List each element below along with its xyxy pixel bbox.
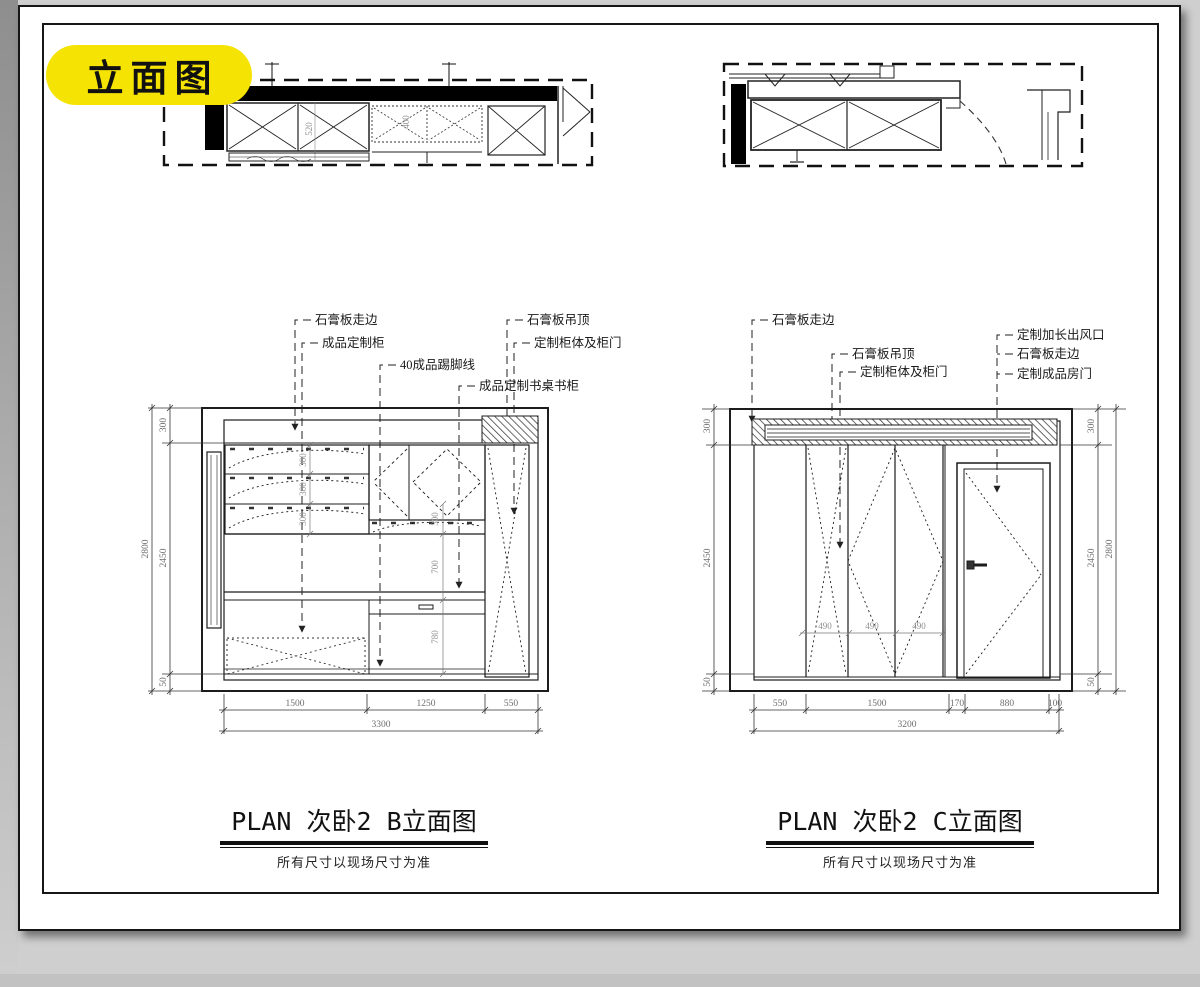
plan-c-wall (731, 84, 746, 164)
callout-labels: 石膏板走边 石膏板吊顶 定制柜体及柜门 定制加长出风口 石膏板走边 定制成品房门 (772, 312, 1105, 381)
dim-label: 1250 (417, 699, 436, 709)
dim-label: 1500 (286, 699, 305, 709)
ceiling-hatch (482, 416, 538, 443)
dim-label: 3200 (898, 720, 917, 730)
dim-label: 550 (504, 699, 519, 709)
dim-label: 490 (865, 621, 879, 631)
dim-label: 400 (401, 115, 411, 129)
callout-label: 石膏板吊顶 (527, 312, 590, 327)
elevation-badge-label: 立面图 (87, 48, 219, 102)
dim-label: 2450 (1087, 548, 1097, 567)
dim-label: 300 (298, 453, 308, 467)
plan-strip-c (707, 48, 1092, 172)
desk-area (224, 592, 485, 674)
elevation-b-title-block: PLAN 次卧2 B立面图 所有尺寸以现场尺寸为准 (159, 802, 549, 871)
dim-label: 300 (430, 512, 440, 526)
plan-c-ceiling-detail (729, 66, 894, 86)
elevation-c-note: 所有尺寸以现场尺寸为准 (705, 852, 1095, 871)
dim-label: 880 (1000, 699, 1015, 709)
plan-b-cabinet (227, 103, 369, 160)
callout-label: 成品定制书桌书柜 (479, 378, 579, 393)
door-panel-dims: 490 490 490 (799, 621, 946, 636)
title-underline (766, 841, 1034, 848)
right-dimension-column: 300 2450 50 2800 (1060, 404, 1126, 695)
air-vent-band (752, 419, 1057, 445)
elevation-c-outline (730, 409, 1072, 691)
dim-label: 780 (430, 630, 440, 644)
callout-label: 定制柜体及柜门 (534, 335, 622, 350)
plan-c-door-swing (960, 101, 1006, 164)
callout-label: 定制柜体及柜门 (860, 364, 948, 379)
dim-label: 490 (818, 621, 832, 631)
callout-label: 40成品踢脚线 (400, 357, 476, 372)
plan-c-door-jamb (1027, 90, 1070, 160)
bottom-dimension-rows: 550 1500 170 880 100 3200 (749, 694, 1064, 734)
dim-label: 520 (304, 122, 314, 136)
callout-label: 石膏板走边 (315, 312, 378, 327)
dim-label: 2450 (703, 548, 713, 567)
dim-label: 490 (912, 621, 926, 631)
dim-label: 50 (703, 677, 713, 687)
window-column (207, 452, 221, 628)
dim-label: 50 (1087, 677, 1097, 687)
plan-b-door-edge (558, 86, 590, 164)
bottom-dimension-rows: 1500 1250 550 3300 (219, 694, 543, 734)
tall-wardrobe-door (485, 445, 529, 677)
dim-label: 100 (1048, 699, 1063, 709)
plan-b-wall (205, 86, 557, 150)
callout-labels: 石膏板走边 成品定制柜 40成品踢脚线 石膏板吊顶 定制柜体及柜门 成品定制书桌… (315, 312, 622, 393)
callout-label: 石膏板走边 (1017, 346, 1080, 361)
room-door (957, 463, 1050, 678)
dim-label: 300 (298, 512, 308, 526)
elevation-c-title-block: PLAN 次卧2 C立面图 所有尺寸以现场尺寸为准 (705, 802, 1095, 871)
plan-c-wardrobe (751, 100, 941, 162)
shelf-unit (225, 445, 369, 534)
plan-c-bulkhead (748, 81, 960, 108)
dim-label: 300 (703, 419, 713, 434)
elevation-c-title: PLAN 次卧2 C立面图 (705, 802, 1095, 838)
dim-label: 50 (159, 677, 169, 687)
callout-label: 石膏板走边 (772, 312, 835, 327)
window-bottom-edge (0, 974, 1200, 987)
dim-label: 2800 (141, 539, 151, 558)
elevation-b-note: 所有尺寸以现场尺寸为准 (159, 852, 549, 871)
left-dimension-column: 300 2450 50 (702, 404, 754, 695)
elevation-b-title: PLAN 次卧2 B立面图 (159, 802, 549, 838)
callout-label: 成品定制柜 (322, 335, 385, 350)
callout-label: 定制成品房门 (1017, 366, 1092, 381)
internal-dims: 300 300 300 300 700 780 (298, 442, 446, 677)
dim-label: 550 (773, 699, 788, 709)
dim-label: 2800 (1105, 539, 1115, 558)
drawing-sheet: 立面图 (18, 5, 1181, 931)
dim-label: 300 (298, 482, 308, 496)
elevation-badge: 立面图 (46, 45, 252, 105)
callout-label: 定制加长出风口 (1017, 327, 1105, 342)
upper-cabinet (225, 445, 485, 534)
dim-label: 3300 (372, 720, 391, 730)
left-dimension-column: 300 2450 50 2800 (141, 404, 224, 695)
dim-label: 300 (1087, 419, 1097, 434)
door-handle (967, 561, 974, 569)
dim-label: 170 (950, 699, 965, 709)
elevation-c-drawing: 石膏板走边 石膏板吊顶 定制柜体及柜门 定制加长出风口 石膏板走边 定制成品房门 (690, 302, 1142, 737)
dim-label: 1500 (868, 699, 887, 709)
elevation-b-drawing: 石膏板走边 成品定制柜 40成品踢脚线 石膏板吊顶 定制柜体及柜门 成品定制书桌… (142, 302, 642, 737)
callout-label: 石膏板吊顶 (852, 346, 915, 361)
elevation-b-outline (202, 408, 548, 691)
dim-label: 700 (430, 560, 440, 574)
viewer-canvas-edge (0, 0, 18, 987)
plan-b-lower-strip (229, 153, 369, 162)
title-underline (220, 841, 488, 848)
dim-label: 300 (159, 418, 169, 433)
wardrobe-sliding-doors (806, 445, 945, 677)
plan-b-desk-side (372, 106, 545, 163)
plan-b-upper-cabinet-dashed (372, 106, 482, 142)
dim-label: 2450 (159, 548, 169, 567)
